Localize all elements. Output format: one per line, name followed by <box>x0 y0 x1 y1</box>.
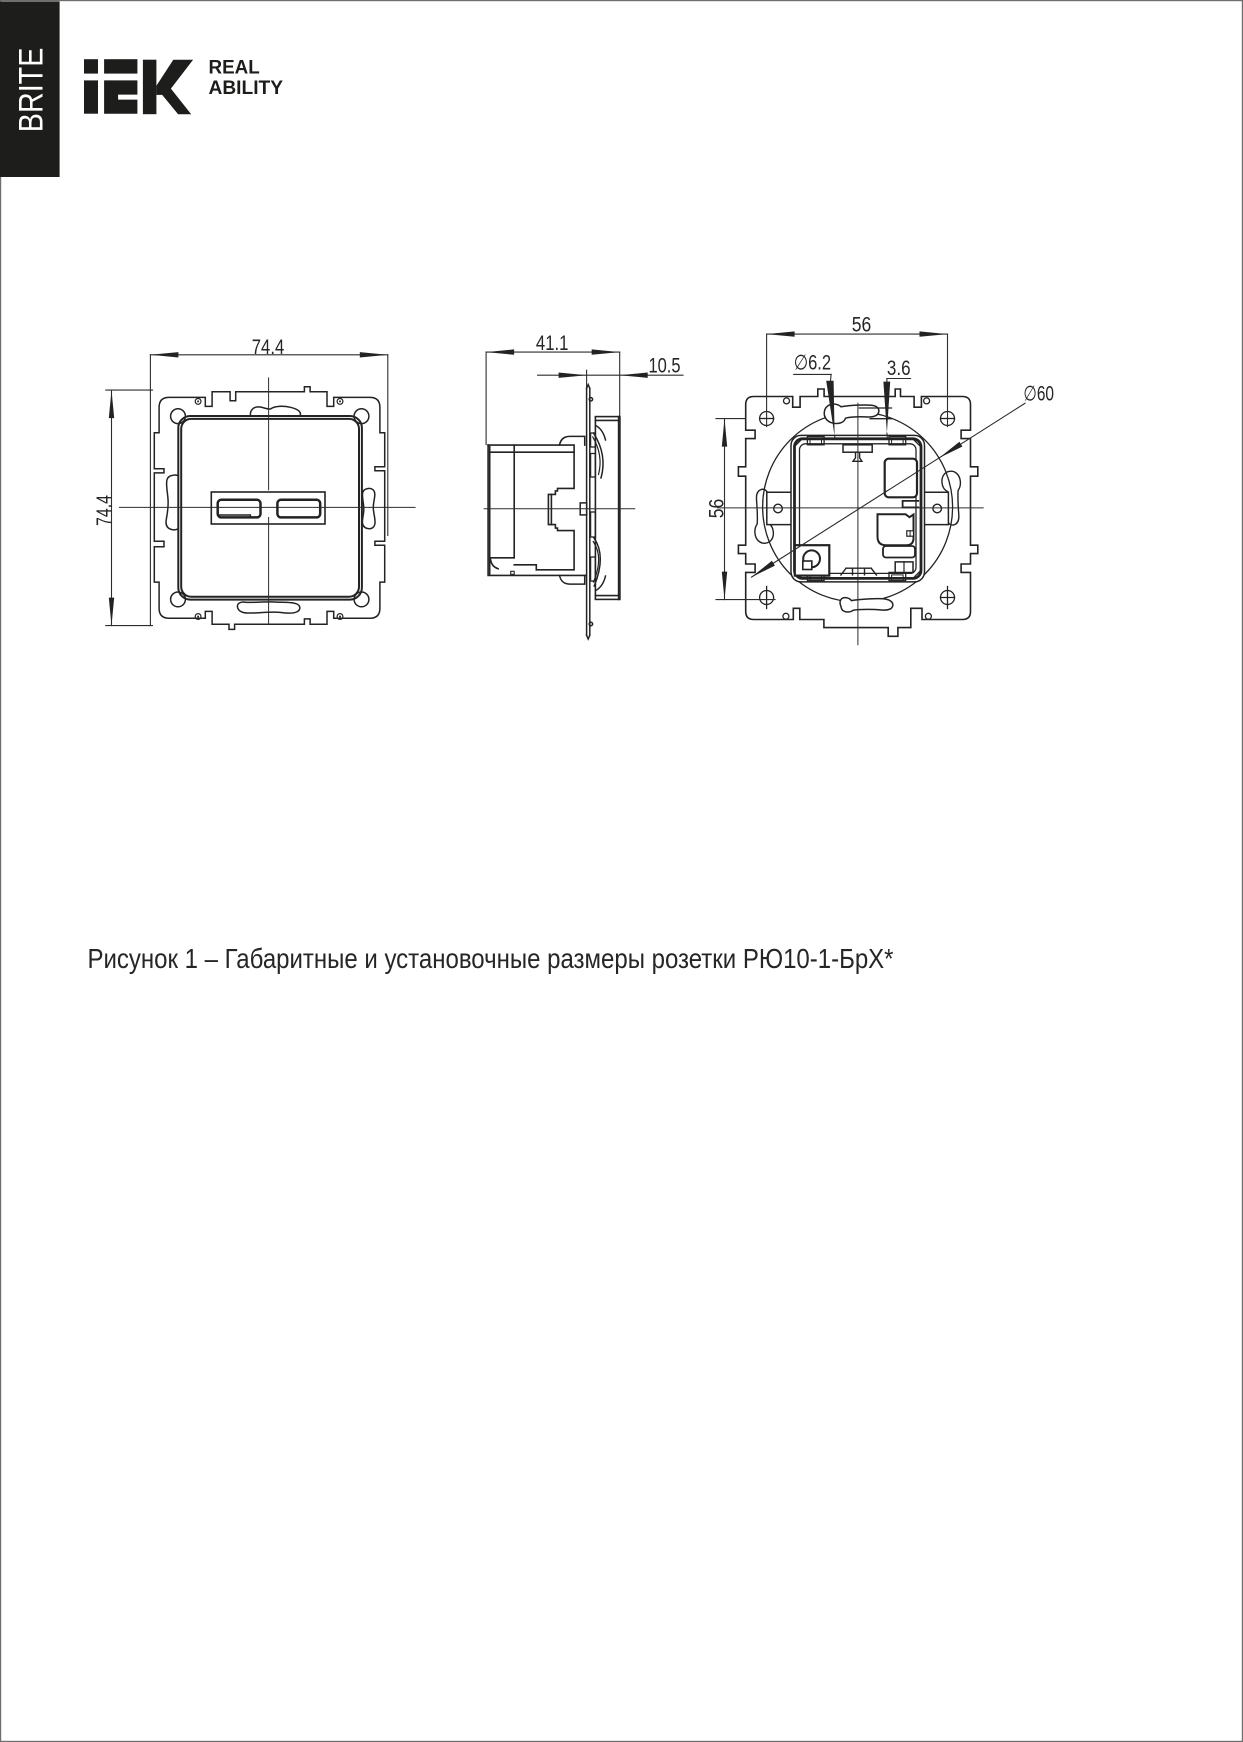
svg-text:Рисунок 1 – Габаритные и устан: Рисунок 1 – Габаритные и установочные ра… <box>88 943 894 974</box>
svg-text:3.6: 3.6 <box>887 357 911 380</box>
svg-text:10.5: 10.5 <box>648 355 680 378</box>
svg-text:∅6.2: ∅6.2 <box>794 352 831 375</box>
svg-text:41.1: 41.1 <box>536 332 569 355</box>
svg-text:BRITE: BRITE <box>12 48 50 133</box>
svg-text:ABILITY: ABILITY <box>209 77 284 99</box>
svg-text:REAL: REAL <box>209 57 260 79</box>
svg-text:56: 56 <box>705 499 728 519</box>
svg-text:56: 56 <box>852 314 872 337</box>
svg-text:74.4: 74.4 <box>252 336 285 359</box>
svg-text:74.4: 74.4 <box>93 495 116 526</box>
svg-text:∅60: ∅60 <box>1023 383 1054 406</box>
